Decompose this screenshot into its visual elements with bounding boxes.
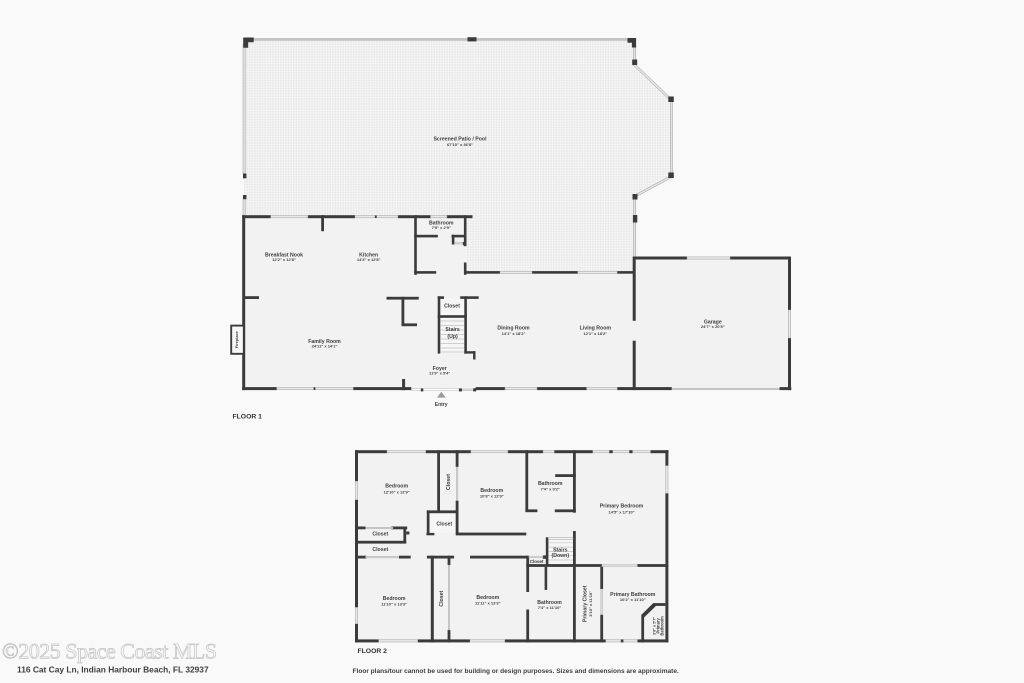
svg-text:7'4" x 9'2": 7'4" x 9'2" (541, 486, 560, 491)
svg-text:FLOOR 2: FLOOR 2 (358, 648, 388, 655)
svg-text:12'1" x 18'2": 12'1" x 18'2" (583, 331, 607, 336)
svg-text:©2025 Space Coast MLS: ©2025 Space Coast MLS (2, 638, 217, 663)
svg-text:Bathroom: Bathroom (660, 616, 665, 636)
svg-text:3'10" x 11'10": 3'10" x 11'10" (588, 591, 593, 617)
svg-text:FLOOR 1: FLOOR 1 (233, 413, 263, 420)
svg-text:24'11" x 14'1": 24'11" x 14'1" (312, 343, 338, 348)
svg-text:11'11" x 13'3": 11'11" x 13'3" (475, 600, 501, 605)
svg-text:Closet: Closet (439, 591, 445, 607)
svg-text:Closet: Closet (372, 547, 388, 553)
svg-text:(Up): (Up) (447, 334, 458, 340)
svg-text:67'10" x 36'8": 67'10" x 36'8" (447, 142, 473, 147)
svg-text:14'1" x 18'2": 14'1" x 18'2" (502, 331, 526, 336)
svg-text:Closet: Closet (444, 304, 460, 310)
svg-text:11'9" x 5'4": 11'9" x 5'4" (429, 370, 450, 375)
svg-text:7'4" x 11'10": 7'4" x 11'10" (538, 605, 562, 610)
svg-text:Stairs: Stairs (445, 327, 460, 333)
svg-text:24'7" x 20'5": 24'7" x 20'5" (701, 324, 725, 329)
svg-text:116 Cat Cay Ln, Indian Harbour: 116 Cat Cay Ln, Indian Harbour Beach, FL… (17, 664, 209, 674)
svg-text:10'8" x 12'9": 10'8" x 12'9" (480, 493, 504, 498)
svg-text:Floor plans/tour cannot be use: Floor plans/tour cannot be used for buil… (353, 668, 679, 675)
svg-text:Closet: Closet (372, 532, 388, 538)
svg-text:(Down): (Down) (552, 553, 570, 559)
svg-text:12'2" x 12'8": 12'2" x 12'8" (272, 257, 296, 262)
svg-text:12'10" x 12'9": 12'10" x 12'9" (384, 490, 410, 495)
svg-text:Closet: Closet (446, 474, 452, 490)
svg-text:Closet: Closet (530, 559, 544, 565)
svg-text:7'9" x 2'9": 7'9" x 2'9" (432, 225, 451, 230)
svg-text:10'2" x 11'10": 10'2" x 11'10" (620, 597, 646, 602)
svg-text:3'9" x 5'7": 3'9" x 5'7" (653, 617, 657, 635)
svg-text:11'10" x 13'3": 11'10" x 13'3" (381, 601, 407, 606)
svg-text:Closet: Closet (436, 522, 452, 528)
svg-text:14'5" x 17'10": 14'5" x 17'10" (608, 510, 634, 515)
svg-text:Fireplace: Fireplace (234, 330, 239, 348)
svg-text:Entry: Entry (435, 402, 448, 408)
svg-text:14'3" x 12'8": 14'3" x 12'8" (357, 257, 381, 262)
